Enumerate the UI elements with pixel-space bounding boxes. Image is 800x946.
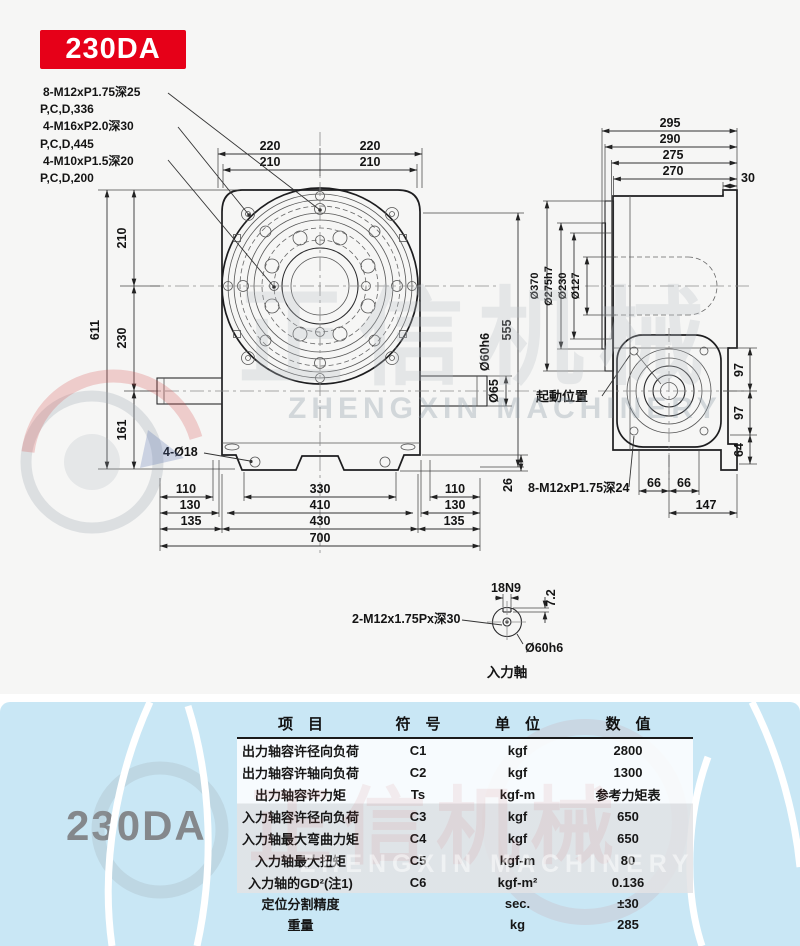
dim-275: 275	[663, 148, 684, 162]
side-bolt-note: 8-M12xP1.75深24	[528, 480, 630, 495]
cell-symbol: Ts	[364, 787, 472, 802]
note-line: 8-M12xP1.75深25	[40, 84, 140, 101]
dim-210-right: 210	[360, 155, 381, 169]
spec-panel: 正信机械 ZHENGXIN MACHINERY 230DA 项 目 符 号 单 …	[0, 702, 800, 946]
dim-130-l: 130	[180, 498, 201, 512]
dim-210v: 210	[115, 228, 129, 249]
cell-item: 出力轴容许轴向负荷	[237, 763, 364, 782]
start-position-label: 起動位置	[535, 389, 588, 404]
dim-97-bottom: 97	[732, 406, 746, 420]
cell-symbol: C5	[364, 853, 472, 868]
dim-135-l: 135	[181, 514, 202, 528]
dim-97-top: 97	[732, 363, 746, 377]
input-shaft-detail: 18N9 7.2 2-M12x1.75Px深30 Ø60h6 入力軸	[352, 581, 563, 680]
cell-unit: sec.	[472, 896, 563, 911]
note-line: P,C,D,336	[40, 101, 140, 118]
dim-700: 700	[310, 531, 331, 545]
cell-unit: kgf	[472, 765, 563, 780]
dim-295: 295	[660, 116, 681, 130]
table-row: 入力轴容许径向负荷 C3 kgf 650	[237, 805, 693, 827]
table-row: 出力轴容许轴向负荷 C2 kgf 1300	[237, 761, 693, 783]
label-4xd18: 4-Ø18	[163, 445, 198, 459]
table-row: 入力轴的GD²(注1) C6 kgf-m² 0.136	[237, 871, 693, 893]
dim-330: 330	[310, 482, 331, 496]
front-body	[222, 190, 420, 470]
dim-110-l: 110	[176, 482, 196, 496]
cell-symbol: C1	[364, 743, 472, 758]
cell-item: 入力轴容许径向负荷	[237, 807, 364, 826]
cell-item: 出力轴容许力矩	[237, 785, 364, 804]
cell-symbol: C4	[364, 831, 472, 846]
cell-unit: kgf	[472, 831, 563, 846]
dim-611: 611	[88, 320, 102, 340]
dim-7-2: 7.2	[544, 589, 558, 606]
dim-110-r: 110	[445, 482, 465, 496]
dim-410: 410	[310, 498, 331, 512]
header-symbol: 符 号	[364, 713, 472, 734]
cell-value: 80	[563, 853, 693, 868]
cell-value: 285	[563, 917, 693, 932]
table-row: 重量 kg 285	[237, 914, 693, 935]
model-badge: 230DA	[40, 30, 186, 69]
dim-66-r: 66	[677, 476, 691, 490]
cell-unit: kgf-m²	[472, 875, 563, 890]
dim-230v: 230	[115, 328, 129, 349]
dim-210-left: 210	[260, 155, 281, 169]
table-row: 出力轴容许径向负荷 C1 kgf 2800	[237, 739, 693, 761]
cell-unit: kgf	[472, 809, 563, 824]
cell-unit: kg	[472, 917, 563, 932]
cell-symbol: C6	[364, 875, 472, 890]
side-view	[585, 190, 750, 480]
cell-unit: kgf	[472, 743, 563, 758]
dim-d60h6: Ø60h6	[478, 333, 492, 371]
spec-table-header: 项 目 符 号 单 位 数 值	[237, 710, 693, 739]
header-value: 数 值	[563, 713, 693, 734]
detail-title: 入力軸	[487, 664, 528, 680]
dim-26: 26	[501, 478, 515, 492]
dim-130-r: 130	[445, 498, 466, 512]
note-line: 4-M10xP1.5深20	[40, 153, 140, 170]
table-row: 定位分割精度 sec. ±30	[237, 893, 693, 914]
cell-symbol: C3	[364, 809, 472, 824]
thread-notes: 8-M12xP1.75深25 P,C,D,336 4-M16xP2.0深30 P…	[40, 84, 140, 187]
dim-220-right: 220	[360, 139, 381, 153]
header-unit: 单 位	[472, 713, 563, 734]
spec-table: 项 目 符 号 单 位 数 值 出力轴容许径向负荷 C1 kgf 2800 出力…	[237, 710, 693, 935]
table-row: 入力轴最大扭矩 C5 kgf-m 80	[237, 849, 693, 871]
header-item: 项 目	[237, 713, 364, 734]
dim-147: 147	[696, 498, 717, 512]
spec-table-footer: 定位分割精度 sec. ±30 重量 kg 285	[237, 893, 693, 935]
dim-d127: Ø127	[570, 273, 582, 300]
cell-value: 1300	[563, 765, 693, 780]
cell-unit: kgf-m	[472, 787, 563, 802]
dim-d275h7: Ø275h7	[543, 266, 555, 306]
table-row: 入力轴最大弯曲力矩 C4 kgf 650	[237, 827, 693, 849]
cell-value: 2800	[563, 743, 693, 758]
tap-note: 2-M12x1.75Px深30	[352, 611, 460, 626]
dim-d370: Ø370	[529, 273, 541, 300]
cell-item: 定位分割精度	[237, 894, 364, 913]
cell-item: 出力轴容许径向负荷	[237, 741, 364, 760]
dim-135-r: 135	[444, 514, 465, 528]
note-line: 4-M16xP2.0深30	[40, 118, 140, 135]
note-line: P,C,D,445	[40, 136, 140, 153]
cell-value: 参考力矩表	[563, 785, 693, 804]
cell-item: 重量	[237, 915, 364, 934]
cell-item: 入力轴最大弯曲力矩	[237, 829, 364, 848]
cell-item: 入力轴最大扭矩	[237, 851, 364, 870]
dim-64: 64	[732, 443, 746, 457]
detail-shaft-dia: Ø60h6	[525, 641, 563, 655]
dim-555: 555	[500, 320, 514, 341]
spec-table-body: 出力轴容许径向负荷 C1 kgf 2800 出力轴容许轴向负荷 C2 kgf 1…	[237, 739, 693, 893]
dim-d65: Ø65	[487, 379, 501, 403]
cell-unit: kgf-m	[472, 853, 563, 868]
cell-value: 650	[563, 831, 693, 846]
dim-220-left: 220	[260, 139, 281, 153]
dim-30: 30	[741, 171, 755, 185]
table-row: 出力轴容许力矩 Ts kgf-m 参考力矩表	[237, 783, 693, 805]
dim-18n9: 18N9	[491, 581, 521, 595]
dim-66-l: 66	[647, 476, 661, 490]
dim-290: 290	[660, 132, 681, 146]
dim-161v: 161	[115, 420, 129, 441]
dim-d230: Ø230	[557, 273, 569, 300]
note-line: P,C,D,200	[40, 170, 140, 187]
cell-symbol: C2	[364, 765, 472, 780]
dim-430: 430	[310, 514, 331, 528]
technical-drawing: 220 220 210 210 611 210 230 161 4-Ø18 11…	[0, 0, 800, 694]
cell-value: ±30	[563, 896, 693, 911]
cell-item: 入力轴的GD²(注1)	[237, 873, 364, 892]
cell-value: 0.136	[563, 875, 693, 890]
dim-270: 270	[663, 164, 684, 178]
side-dims: 295 290 275 270 30 Ø370 Ø275h7 Ø230 Ø127…	[528, 116, 757, 518]
cell-value: 650	[563, 809, 693, 824]
